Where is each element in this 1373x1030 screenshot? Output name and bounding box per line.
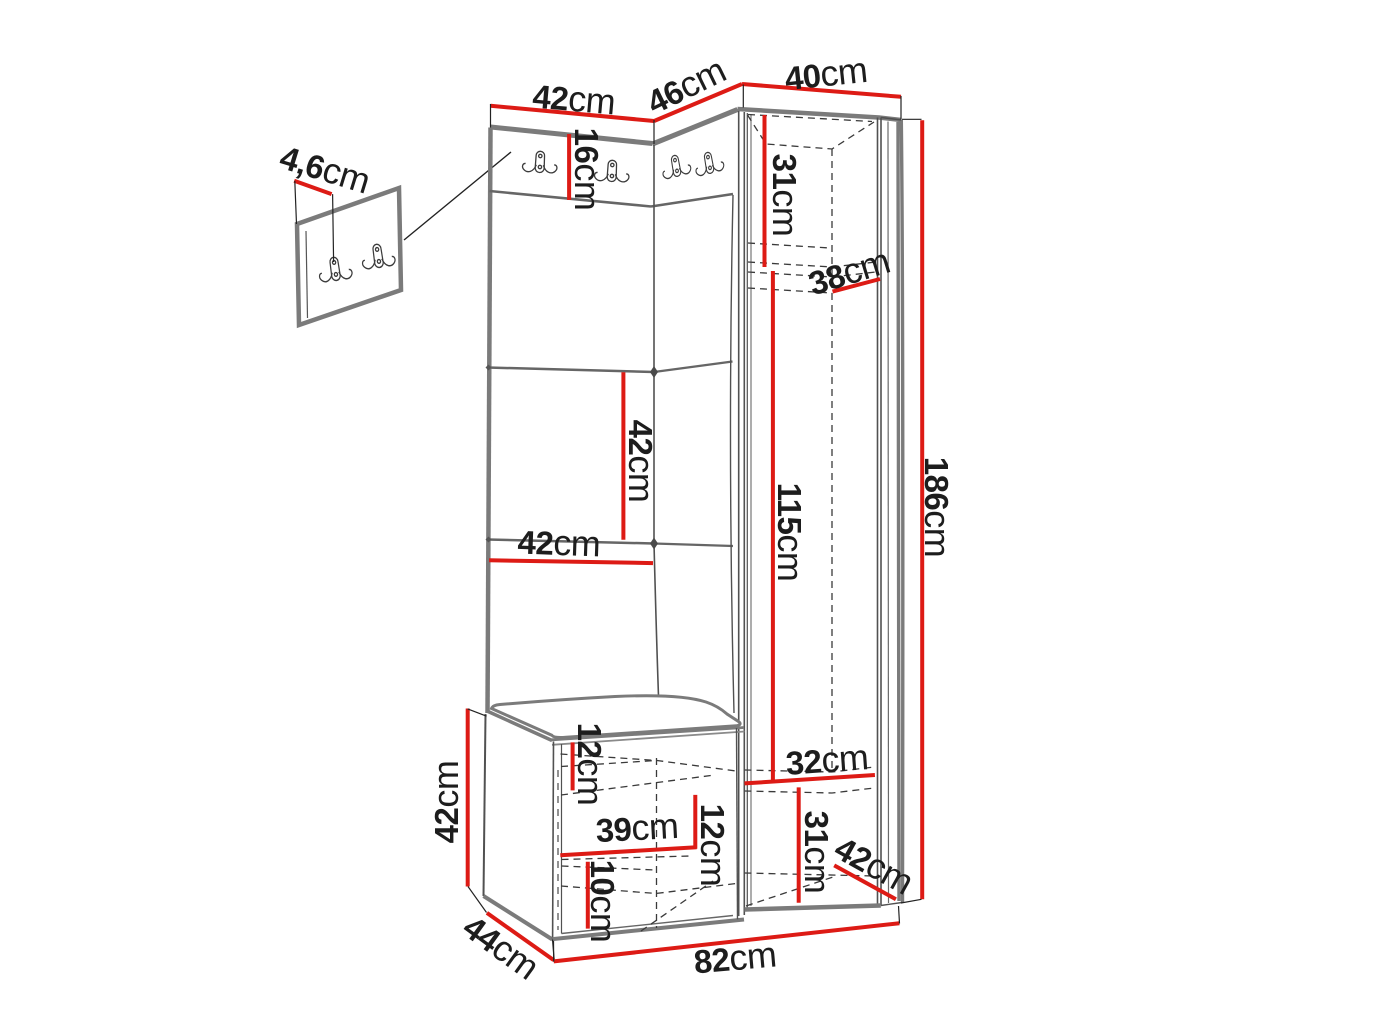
svg-text:42cm: 42cm (425, 761, 466, 844)
svg-text:46cm: 46cm (640, 49, 732, 122)
svg-text:186cm: 186cm (917, 457, 958, 558)
svg-text:10cm: 10cm (583, 860, 624, 943)
svg-text:12cm: 12cm (570, 723, 611, 806)
svg-text:31cm: 31cm (765, 154, 806, 237)
svg-text:82cm: 82cm (692, 933, 778, 981)
svg-text:32cm: 32cm (784, 736, 869, 783)
svg-text:31cm: 31cm (797, 811, 838, 894)
svg-text:12cm: 12cm (693, 804, 734, 887)
svg-text:42cm: 42cm (828, 827, 920, 903)
svg-text:16cm: 16cm (567, 128, 608, 211)
svg-text:42cm: 42cm (531, 74, 617, 122)
svg-text:42cm: 42cm (517, 521, 601, 565)
svg-text:115cm: 115cm (770, 483, 811, 582)
svg-text:44cm: 44cm (456, 906, 547, 988)
svg-text:42cm: 42cm (621, 420, 662, 503)
svg-text:39cm: 39cm (595, 805, 680, 850)
svg-text:40cm: 40cm (783, 49, 870, 98)
